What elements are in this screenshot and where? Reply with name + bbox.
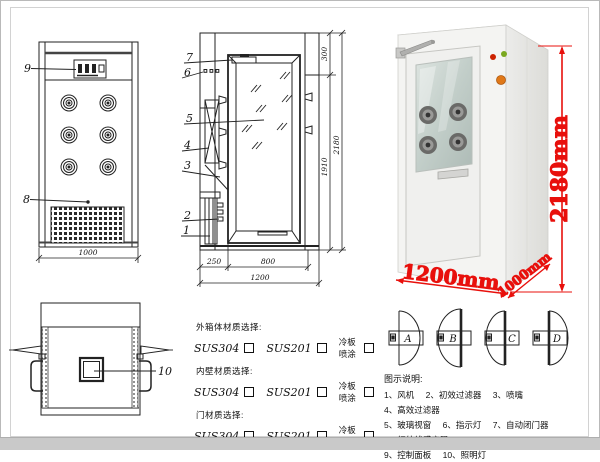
callout-1-label: 1: [183, 224, 190, 237]
checkbox: [244, 387, 254, 397]
dim-left-label: 250: [206, 257, 222, 266]
product-photo: 2180mm 1200mm 1000mm: [388, 12, 580, 308]
callout-9-label: 9: [24, 62, 31, 75]
door-option-label: A: [403, 334, 411, 345]
red-indicator-icon: [490, 54, 496, 60]
legend-item: 7、自动闭门器: [493, 418, 549, 433]
door-swing-options: A B C D: [386, 304, 578, 372]
legend-item: 5、玻璃视窗: [384, 418, 431, 433]
front-width-dim-label: 1000: [78, 248, 97, 257]
side-view-callouts: 7 6 5 4 3 2 1: [181, 51, 264, 237]
callout-9: 9: [24, 62, 76, 75]
material-option-label: SUS201: [266, 342, 311, 355]
material-option-label: SUS304: [194, 386, 239, 399]
material-selection-block: 外箱体材质选择: SUS304 SUS201 冷板喷涂 内壁材质选择: SUS3…: [194, 316, 374, 453]
wall-hatch: [42, 327, 48, 408]
nozzle-grid: [61, 95, 116, 175]
checkbox: [244, 343, 254, 353]
callout-3-label: 3: [184, 159, 191, 172]
photo-height-dim-label: 2180mm: [547, 115, 573, 223]
callout-8: 8: [23, 193, 90, 206]
glass-hatch-marks: [242, 72, 292, 149]
bottom-border-strip: [0, 437, 600, 450]
control-panel: [74, 60, 106, 78]
front-view-drawing: 9 8 1000: [18, 36, 153, 274]
nozzle-icon: [61, 95, 77, 111]
checkbox: [364, 387, 374, 397]
door-option-label: D: [552, 334, 561, 345]
emergency-button-icon: [497, 76, 506, 85]
nozzle-icon: [419, 136, 437, 154]
legend-item: 2、初效过滤器: [426, 388, 482, 403]
door-option-label: B: [448, 334, 456, 345]
legend-item: 1、风机: [384, 388, 414, 403]
checkbox: [317, 387, 327, 397]
door-option-c: C: [482, 304, 523, 372]
side-height-dimensions: 300 1910 2180: [319, 30, 346, 253]
nozzle-duct-line: [205, 165, 228, 190]
material-option-row: SUS304 SUS201 冷板喷涂: [194, 380, 374, 404]
dim-total-width-label: 1200: [250, 273, 269, 282]
dim-door-height-label: 1910: [320, 157, 329, 176]
interlock-window: [80, 358, 103, 381]
fan-unit: [205, 100, 219, 163]
wall-hatch: [132, 327, 138, 408]
top-view-drawing: 10: [8, 296, 180, 426]
material-option-label: SUS201: [266, 386, 311, 399]
nozzle-icon: [449, 103, 467, 121]
air-return-grille: [51, 207, 124, 243]
legend-row: 1、风机 2、初效过滤器 3、喷嘴 4、高效过滤器: [384, 388, 584, 418]
callout-10-label: 10: [158, 365, 172, 378]
callout-2-label: 2: [183, 209, 191, 222]
material-option-label: SUS304: [194, 342, 239, 355]
front-width-dimension: 1000: [36, 248, 141, 263]
door-push-bar: [258, 232, 287, 235]
glass-door: [406, 46, 480, 266]
indicator-lights: [204, 70, 219, 73]
side-nozzles: [219, 93, 312, 169]
material-option-label: 冷板喷涂: [339, 336, 359, 360]
callout-5-label: 5: [186, 112, 193, 125]
material-option-row: SUS304 SUS201 冷板喷涂: [194, 336, 374, 360]
door-swing-arrows: [9, 346, 173, 354]
dim-total-height-label: 2180: [332, 135, 341, 155]
material-section-title: 外箱体材质选择:: [196, 321, 374, 333]
legend-item: 4、高效过滤器: [384, 403, 440, 418]
door-option-d: D: [530, 304, 571, 372]
material-section-title: 门材质选择:: [196, 409, 374, 421]
nozzle-icon: [61, 127, 77, 143]
side-view-drawing: 7 6 5 4 3 2 1 300 1910 2180: [176, 27, 358, 291]
door-option-a: A: [386, 304, 427, 372]
checkbox: [364, 343, 374, 353]
nozzle-icon: [419, 106, 437, 124]
checkbox: [317, 343, 327, 353]
nozzle-icon: [100, 127, 116, 143]
nozzle-icon: [100, 95, 116, 111]
legend-item: 3、喷嘴: [493, 388, 523, 403]
dim-door-width-label: 800: [261, 257, 276, 266]
nozzle-icon: [61, 159, 77, 175]
material-section-title: 内壁材质选择:: [196, 365, 374, 377]
legend-item: 6、指示灯: [443, 418, 482, 433]
nozzle-icon: [449, 133, 467, 151]
material-option-label: 冷板喷涂: [339, 380, 359, 404]
door-option-b: B: [434, 304, 475, 372]
legend-title: 图示说明:: [384, 372, 584, 385]
dim-top-label: 300: [320, 47, 329, 62]
callout-8-label: 8: [23, 193, 30, 206]
nozzle-icon: [100, 159, 116, 175]
callout-7-label: 7: [186, 51, 193, 64]
door-option-label: C: [508, 334, 516, 345]
green-indicator-icon: [501, 51, 507, 57]
door-with-glass: [228, 55, 300, 243]
